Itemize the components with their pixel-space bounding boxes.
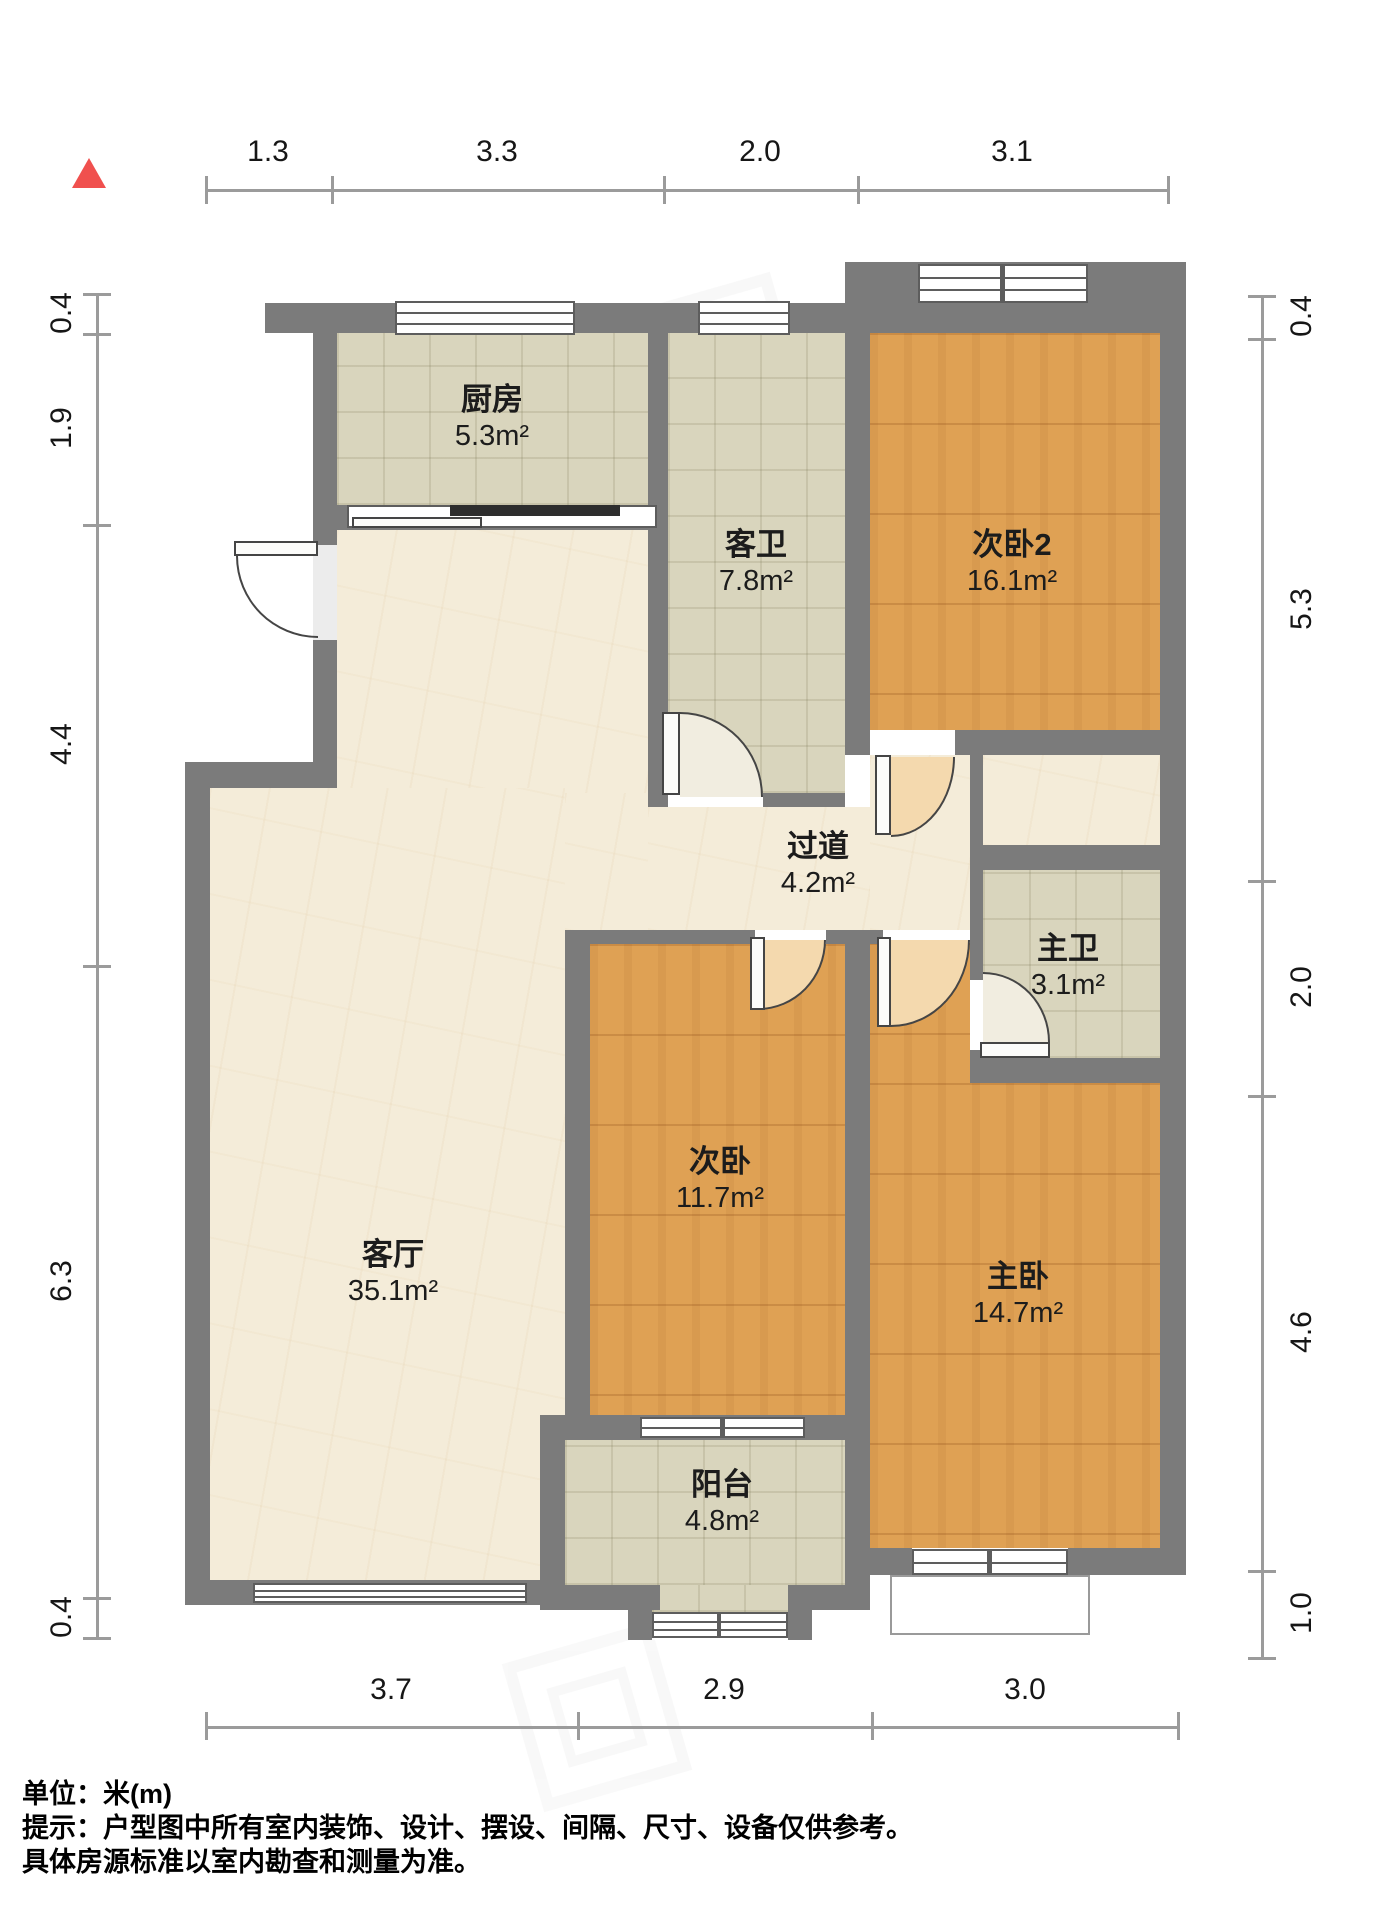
bedroom-balcony-door-window bbox=[640, 1417, 805, 1438]
dim-tick bbox=[1248, 295, 1276, 298]
wall bbox=[970, 845, 1160, 870]
dim-tick bbox=[83, 524, 111, 527]
dim-tick bbox=[663, 176, 666, 204]
wall bbox=[870, 1548, 912, 1575]
room-area: 4.8m² bbox=[685, 1506, 759, 1538]
entry-door-arc bbox=[236, 556, 318, 638]
dim-left-2: 4.4 bbox=[45, 723, 79, 765]
dim-tick bbox=[1177, 1712, 1180, 1740]
room-name: 主卫 bbox=[1031, 932, 1105, 966]
room-label-guest-bath: 客卫 7.8m² bbox=[719, 528, 793, 598]
room-label-master-bedroom: 主卧 14.7m² bbox=[973, 1260, 1063, 1330]
entry-door bbox=[234, 541, 318, 556]
dim-tick bbox=[83, 1637, 111, 1640]
dim-bottom-1: 2.9 bbox=[703, 1673, 745, 1707]
wall bbox=[540, 1415, 565, 1610]
footer-tip-line2: 具体房源标准以室内勘查和测量为准。 bbox=[22, 1840, 481, 1879]
wall bbox=[185, 762, 210, 1605]
dim-left-1: 1.9 bbox=[45, 407, 79, 449]
dim-tick bbox=[1167, 176, 1170, 204]
room-label-bedroom: 次卧 11.7m² bbox=[676, 1145, 764, 1215]
kitchen-window bbox=[395, 301, 575, 335]
guest-bath-window bbox=[698, 301, 790, 335]
dim-tick bbox=[871, 1712, 874, 1740]
dim-tick bbox=[83, 293, 111, 296]
kitchen-sliding-door-panel bbox=[450, 505, 620, 516]
master-bedroom-window bbox=[912, 1549, 1068, 1575]
room-name: 客卫 bbox=[719, 528, 793, 562]
living-room-window bbox=[253, 1583, 527, 1603]
wall bbox=[313, 640, 337, 775]
room-area: 11.7m² bbox=[676, 1183, 764, 1215]
bedroom-2-window bbox=[918, 264, 1088, 303]
room-name: 次卧2 bbox=[967, 528, 1057, 562]
kitchen-sliding-door-panel bbox=[352, 517, 482, 528]
wall bbox=[565, 930, 755, 944]
room-label-hallway: 过道 4.2m² bbox=[781, 830, 855, 900]
dim-tick bbox=[577, 1712, 580, 1740]
room-area: 5.3m² bbox=[455, 421, 529, 453]
floor-plan-canvas: 厨房 5.3m² 客卫 7.8m² 次卧2 16.1m² 过道 4.2m² 主卫… bbox=[0, 0, 1374, 1916]
bedroom-2-door bbox=[875, 755, 891, 835]
wall bbox=[826, 930, 883, 944]
wall bbox=[628, 1585, 652, 1640]
dim-tick bbox=[1248, 1095, 1276, 1098]
wall bbox=[1160, 262, 1186, 1575]
room-name: 主卧 bbox=[973, 1260, 1063, 1294]
balcony-window bbox=[652, 1612, 788, 1638]
room-label-bedroom-2: 次卧2 16.1m² bbox=[967, 528, 1057, 598]
master-bedroom-door bbox=[877, 937, 891, 1027]
wall bbox=[313, 303, 337, 545]
dim-left-0: 0.4 bbox=[45, 292, 79, 334]
room-area: 7.8m² bbox=[719, 566, 793, 598]
dim-right-2: 2.0 bbox=[1285, 966, 1319, 1008]
dim-top-0: 1.3 bbox=[247, 135, 289, 169]
room-name: 阳台 bbox=[685, 1468, 759, 1502]
watermark bbox=[502, 1622, 692, 1812]
dim-tick bbox=[1248, 1657, 1276, 1660]
wall bbox=[763, 793, 845, 807]
room-name: 客厅 bbox=[348, 1238, 438, 1272]
dim-tick bbox=[83, 333, 111, 336]
dim-tick bbox=[1248, 880, 1276, 883]
wall bbox=[845, 303, 870, 755]
dim-tick bbox=[205, 1712, 208, 1740]
wall bbox=[648, 793, 668, 807]
dim-right-0: 0.4 bbox=[1285, 295, 1319, 337]
dim-top-2: 2.0 bbox=[739, 135, 781, 169]
dim-top-3: 3.1 bbox=[991, 135, 1033, 169]
dim-right-1: 5.3 bbox=[1285, 588, 1319, 630]
floor-balcony-bump bbox=[652, 1585, 788, 1612]
dim-tick bbox=[83, 965, 111, 968]
dim-line-top bbox=[205, 189, 1167, 192]
dim-tick bbox=[1248, 1570, 1276, 1573]
dim-left-4: 0.4 bbox=[45, 1596, 79, 1638]
room-label-kitchen: 厨房 5.3m² bbox=[455, 383, 529, 453]
room-name: 过道 bbox=[781, 830, 855, 864]
dim-tick bbox=[205, 176, 208, 204]
dim-top-1: 3.3 bbox=[476, 135, 518, 169]
dim-right-3: 4.6 bbox=[1285, 1311, 1319, 1353]
bedroom-door bbox=[750, 937, 765, 1010]
dim-right-4: 1.0 bbox=[1285, 1592, 1319, 1634]
room-label-balcony: 阳台 4.8m² bbox=[685, 1468, 759, 1538]
north-arrow-icon bbox=[72, 158, 106, 188]
wall bbox=[955, 730, 1160, 755]
room-area: 4.2m² bbox=[781, 868, 855, 900]
room-area: 35.1m² bbox=[348, 1276, 438, 1308]
dim-tick bbox=[83, 1597, 111, 1600]
room-label-master-bath: 主卫 3.1m² bbox=[1031, 932, 1105, 1002]
floor-living-main bbox=[210, 788, 565, 1582]
guest-bath-door bbox=[662, 712, 680, 795]
dim-left-3: 6.3 bbox=[45, 1260, 79, 1302]
room-label-living-room: 客厅 35.1m² bbox=[348, 1238, 438, 1308]
room-area: 14.7m² bbox=[973, 1298, 1063, 1330]
floor-hallway-strip bbox=[983, 755, 1160, 845]
wall bbox=[565, 930, 590, 1440]
dim-tick bbox=[1248, 338, 1276, 341]
wall bbox=[970, 1058, 1160, 1083]
dim-bottom-0: 3.7 bbox=[370, 1673, 412, 1707]
floor-living-mid bbox=[565, 793, 648, 930]
wall bbox=[1068, 1548, 1186, 1575]
dim-line-bottom bbox=[205, 1726, 1180, 1729]
master-bath-door bbox=[980, 1042, 1050, 1058]
dim-bottom-2: 3.0 bbox=[1004, 1673, 1046, 1707]
master-bedroom-window-sill bbox=[890, 1575, 1090, 1635]
dim-line-right bbox=[1261, 295, 1264, 1660]
wall bbox=[845, 930, 870, 1610]
dim-tick bbox=[331, 176, 334, 204]
room-name: 次卧 bbox=[676, 1145, 764, 1179]
room-name: 厨房 bbox=[455, 383, 529, 417]
room-area: 16.1m² bbox=[967, 566, 1057, 598]
dim-tick bbox=[857, 176, 860, 204]
room-area: 3.1m² bbox=[1031, 970, 1105, 1002]
